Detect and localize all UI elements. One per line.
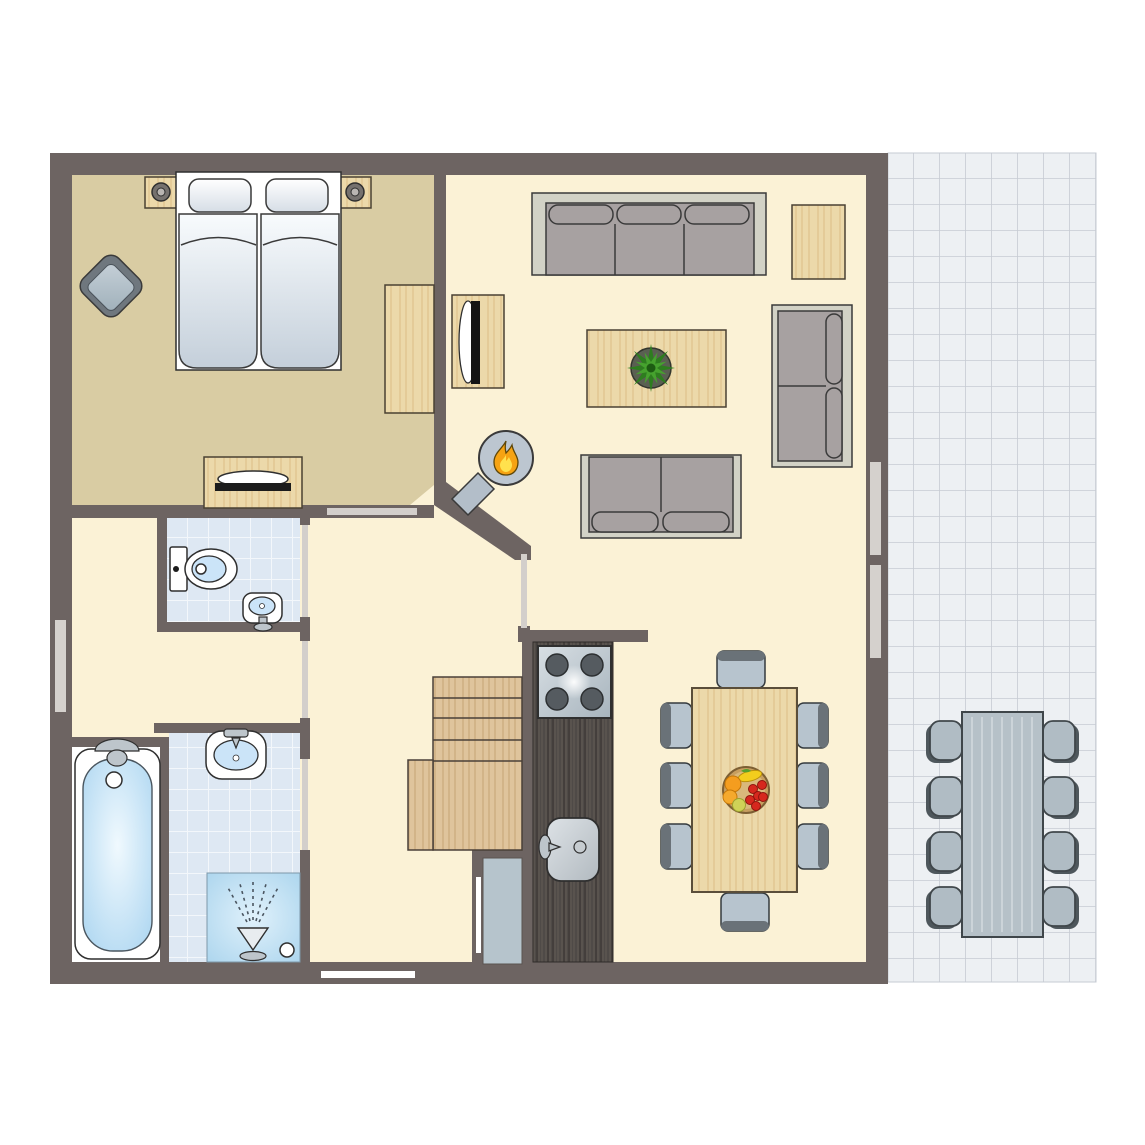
terrace-chair (1043, 721, 1079, 763)
dining-chair (661, 763, 692, 808)
desk (385, 285, 434, 413)
wc-basin-drain (260, 604, 265, 609)
door-bedroom (327, 508, 417, 515)
wall-left (50, 153, 72, 984)
stove-burner (546, 688, 568, 710)
fruit-bowl-icon (723, 767, 769, 813)
window-living-1 (870, 462, 881, 555)
lamp-icon-inner (157, 188, 165, 196)
dresser-tv-bar (215, 483, 291, 491)
wc-basin-faucet-base (254, 623, 272, 631)
washbasin-drain (233, 755, 239, 761)
wall-wc-bottom (157, 622, 310, 632)
floor-plan-page: Apartment floor plan with terrace (0, 0, 1145, 1145)
pillow-left (189, 179, 251, 212)
wall-corridor-seg4 (300, 850, 310, 962)
sofa-back-pillow (826, 388, 842, 458)
entry-door-leaf (476, 877, 481, 953)
wall-wc-left (157, 517, 167, 622)
terrace-chair (926, 777, 962, 819)
door-living (521, 554, 527, 628)
sofa-back-pillow (617, 205, 681, 224)
terrace-chair (926, 887, 962, 929)
stove-burner (581, 654, 603, 676)
dining-chair (797, 824, 828, 869)
stair-landing (408, 760, 433, 850)
wall-kitchen-top (518, 630, 648, 642)
tv-screen (471, 301, 480, 384)
wall-bedroom-right (434, 175, 446, 482)
side-table (792, 205, 845, 279)
wall-kitchen-side (522, 642, 533, 848)
window-left (55, 620, 66, 712)
kitchen (533, 642, 613, 962)
dining-chair (661, 703, 692, 748)
plant-center (647, 364, 656, 373)
window-bottom (321, 971, 415, 978)
door-hallway (302, 641, 308, 718)
terrace-chair (926, 721, 962, 763)
kitchen-sink-drain (574, 841, 586, 853)
terrace-chair (1043, 832, 1079, 874)
lamp-icon-inner (351, 188, 359, 196)
washbasin-faucet (224, 729, 248, 737)
sofa-back-pillow (826, 314, 842, 384)
shower-drain (280, 943, 294, 957)
toilet-drain (196, 564, 206, 574)
door-bathroom (302, 759, 308, 850)
sofa-back-pillow (592, 512, 658, 532)
wall-bottom (50, 962, 888, 984)
bathtub-faucet-knob (107, 750, 127, 766)
floor-plan: Apartment floor plan with terrace (0, 0, 1145, 1145)
dining-chair (797, 703, 828, 748)
wall-tub-divider (160, 737, 169, 962)
terrace-chair (1043, 887, 1079, 929)
dining-chair (721, 893, 769, 931)
bathtub-drain (106, 772, 122, 788)
sofa-back-pillow (663, 512, 729, 532)
shower-head-base (240, 952, 266, 961)
stove-burner (581, 688, 603, 710)
stove-burner (546, 654, 568, 676)
sofa-back-pillow (685, 205, 749, 224)
sofa-back-pillow (549, 205, 613, 224)
pillow-right (266, 179, 328, 212)
toilet-flush-button (173, 566, 179, 572)
window-living-2 (870, 565, 881, 658)
dining-chair (717, 651, 765, 688)
wall-corridor-seg2 (300, 617, 310, 641)
wall-corridor-seg3 (300, 718, 310, 759)
stair-flight (433, 677, 522, 850)
door-wc (302, 525, 308, 617)
terrace-chair (926, 832, 962, 874)
dining-chair (797, 763, 828, 808)
dining-chair (661, 824, 692, 869)
entry-door (483, 858, 522, 964)
wall-corridor-seg1 (300, 517, 310, 525)
terrace-chair (1043, 777, 1079, 819)
